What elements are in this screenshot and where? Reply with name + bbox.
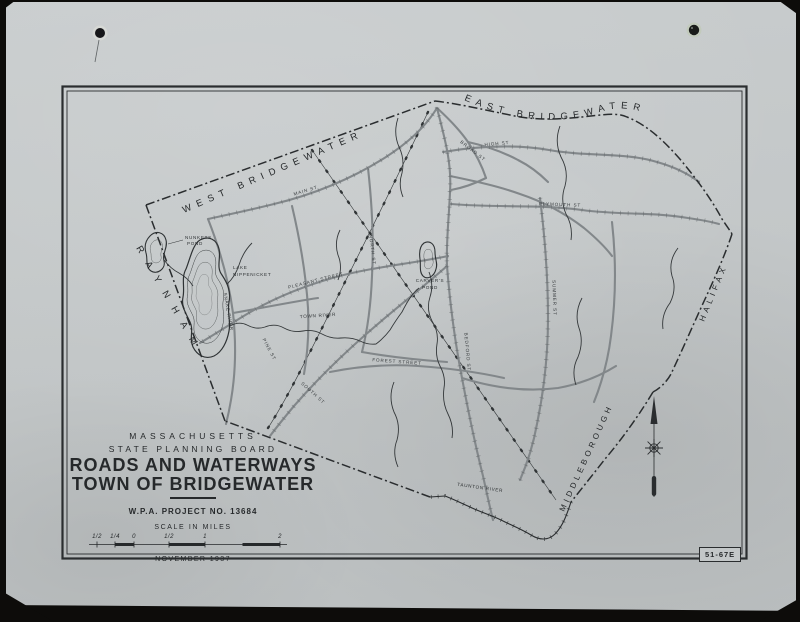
street-label: BEDFORD ST	[463, 332, 471, 371]
neighbor-west-bridgewater: WEST BRIDGEWATER	[181, 128, 365, 215]
scale-tick-label: 1/2	[92, 534, 102, 540]
scale-tick-label: 0	[132, 534, 136, 540]
river-boundary	[430, 496, 571, 539]
pin-right	[687, 23, 702, 38]
carvers-pond-label2: POND	[422, 285, 438, 290]
photo-backdrop: MAIN ST HIGH ST BROAD ST PLYMOUTH ST PLE…	[0, 0, 800, 622]
taunton-river-label: TAUNTON RIVER	[457, 482, 503, 493]
title-block: MASSACHUSETTS STATE PLANNING BOARD ROADS…	[40, 431, 346, 563]
scale-tick-label: 1/4	[110, 534, 120, 540]
wpa-project-number: W.P.A. PROJECT NO. 13684	[40, 507, 346, 516]
scale-tick-label: 1/2	[164, 534, 174, 540]
mounting-pins	[93, 23, 702, 63]
town-river-label: TOWN RIVER	[300, 312, 337, 320]
street-label: SUMMER ST	[551, 280, 557, 316]
neighbor-halifax: HALIFAX	[698, 263, 730, 323]
nunkets-pond-label: NUNKETS	[185, 235, 212, 240]
carvers-pond-label: CARVER'S	[416, 278, 445, 283]
map-title-line2: TOWN OF BRIDGEWATER	[40, 475, 346, 494]
state-name: MASSACHUSETTS	[40, 431, 346, 441]
scale-tick-label: 2	[277, 534, 282, 540]
streams	[164, 118, 678, 467]
map-date: NOVEMBER 1937	[40, 556, 346, 563]
lake-nippenicket-label2: NIPPENICKET	[233, 272, 271, 277]
lake-nippenicket-label: LAKE	[233, 265, 248, 270]
neighbor-raynham: RAYNHAM	[133, 244, 205, 357]
agency-name: STATE PLANNING BOARD	[40, 444, 346, 454]
street-label: PINE ST	[261, 337, 277, 361]
north-arrow	[645, 396, 663, 497]
scale-tick-label: 1	[203, 534, 207, 540]
scale-caption: SCALE IN MILES	[40, 524, 346, 531]
compass-star	[645, 439, 663, 457]
street-label: NORTH ST	[368, 234, 377, 265]
scale-bar: 1/2 1/4 0 1/2 1 2	[40, 532, 346, 555]
neighbor-east-bridgewater: EAST BRIDGEWATER	[463, 93, 647, 123]
plate-number: 51-67E	[699, 547, 741, 562]
nunkets-pond-label2: POND	[187, 241, 203, 246]
title-underline	[170, 497, 216, 499]
pin-left	[93, 26, 108, 63]
street-label: PLEASANT STREET	[287, 271, 343, 290]
map-title-line1: ROADS AND WATERWAYS	[40, 456, 346, 475]
